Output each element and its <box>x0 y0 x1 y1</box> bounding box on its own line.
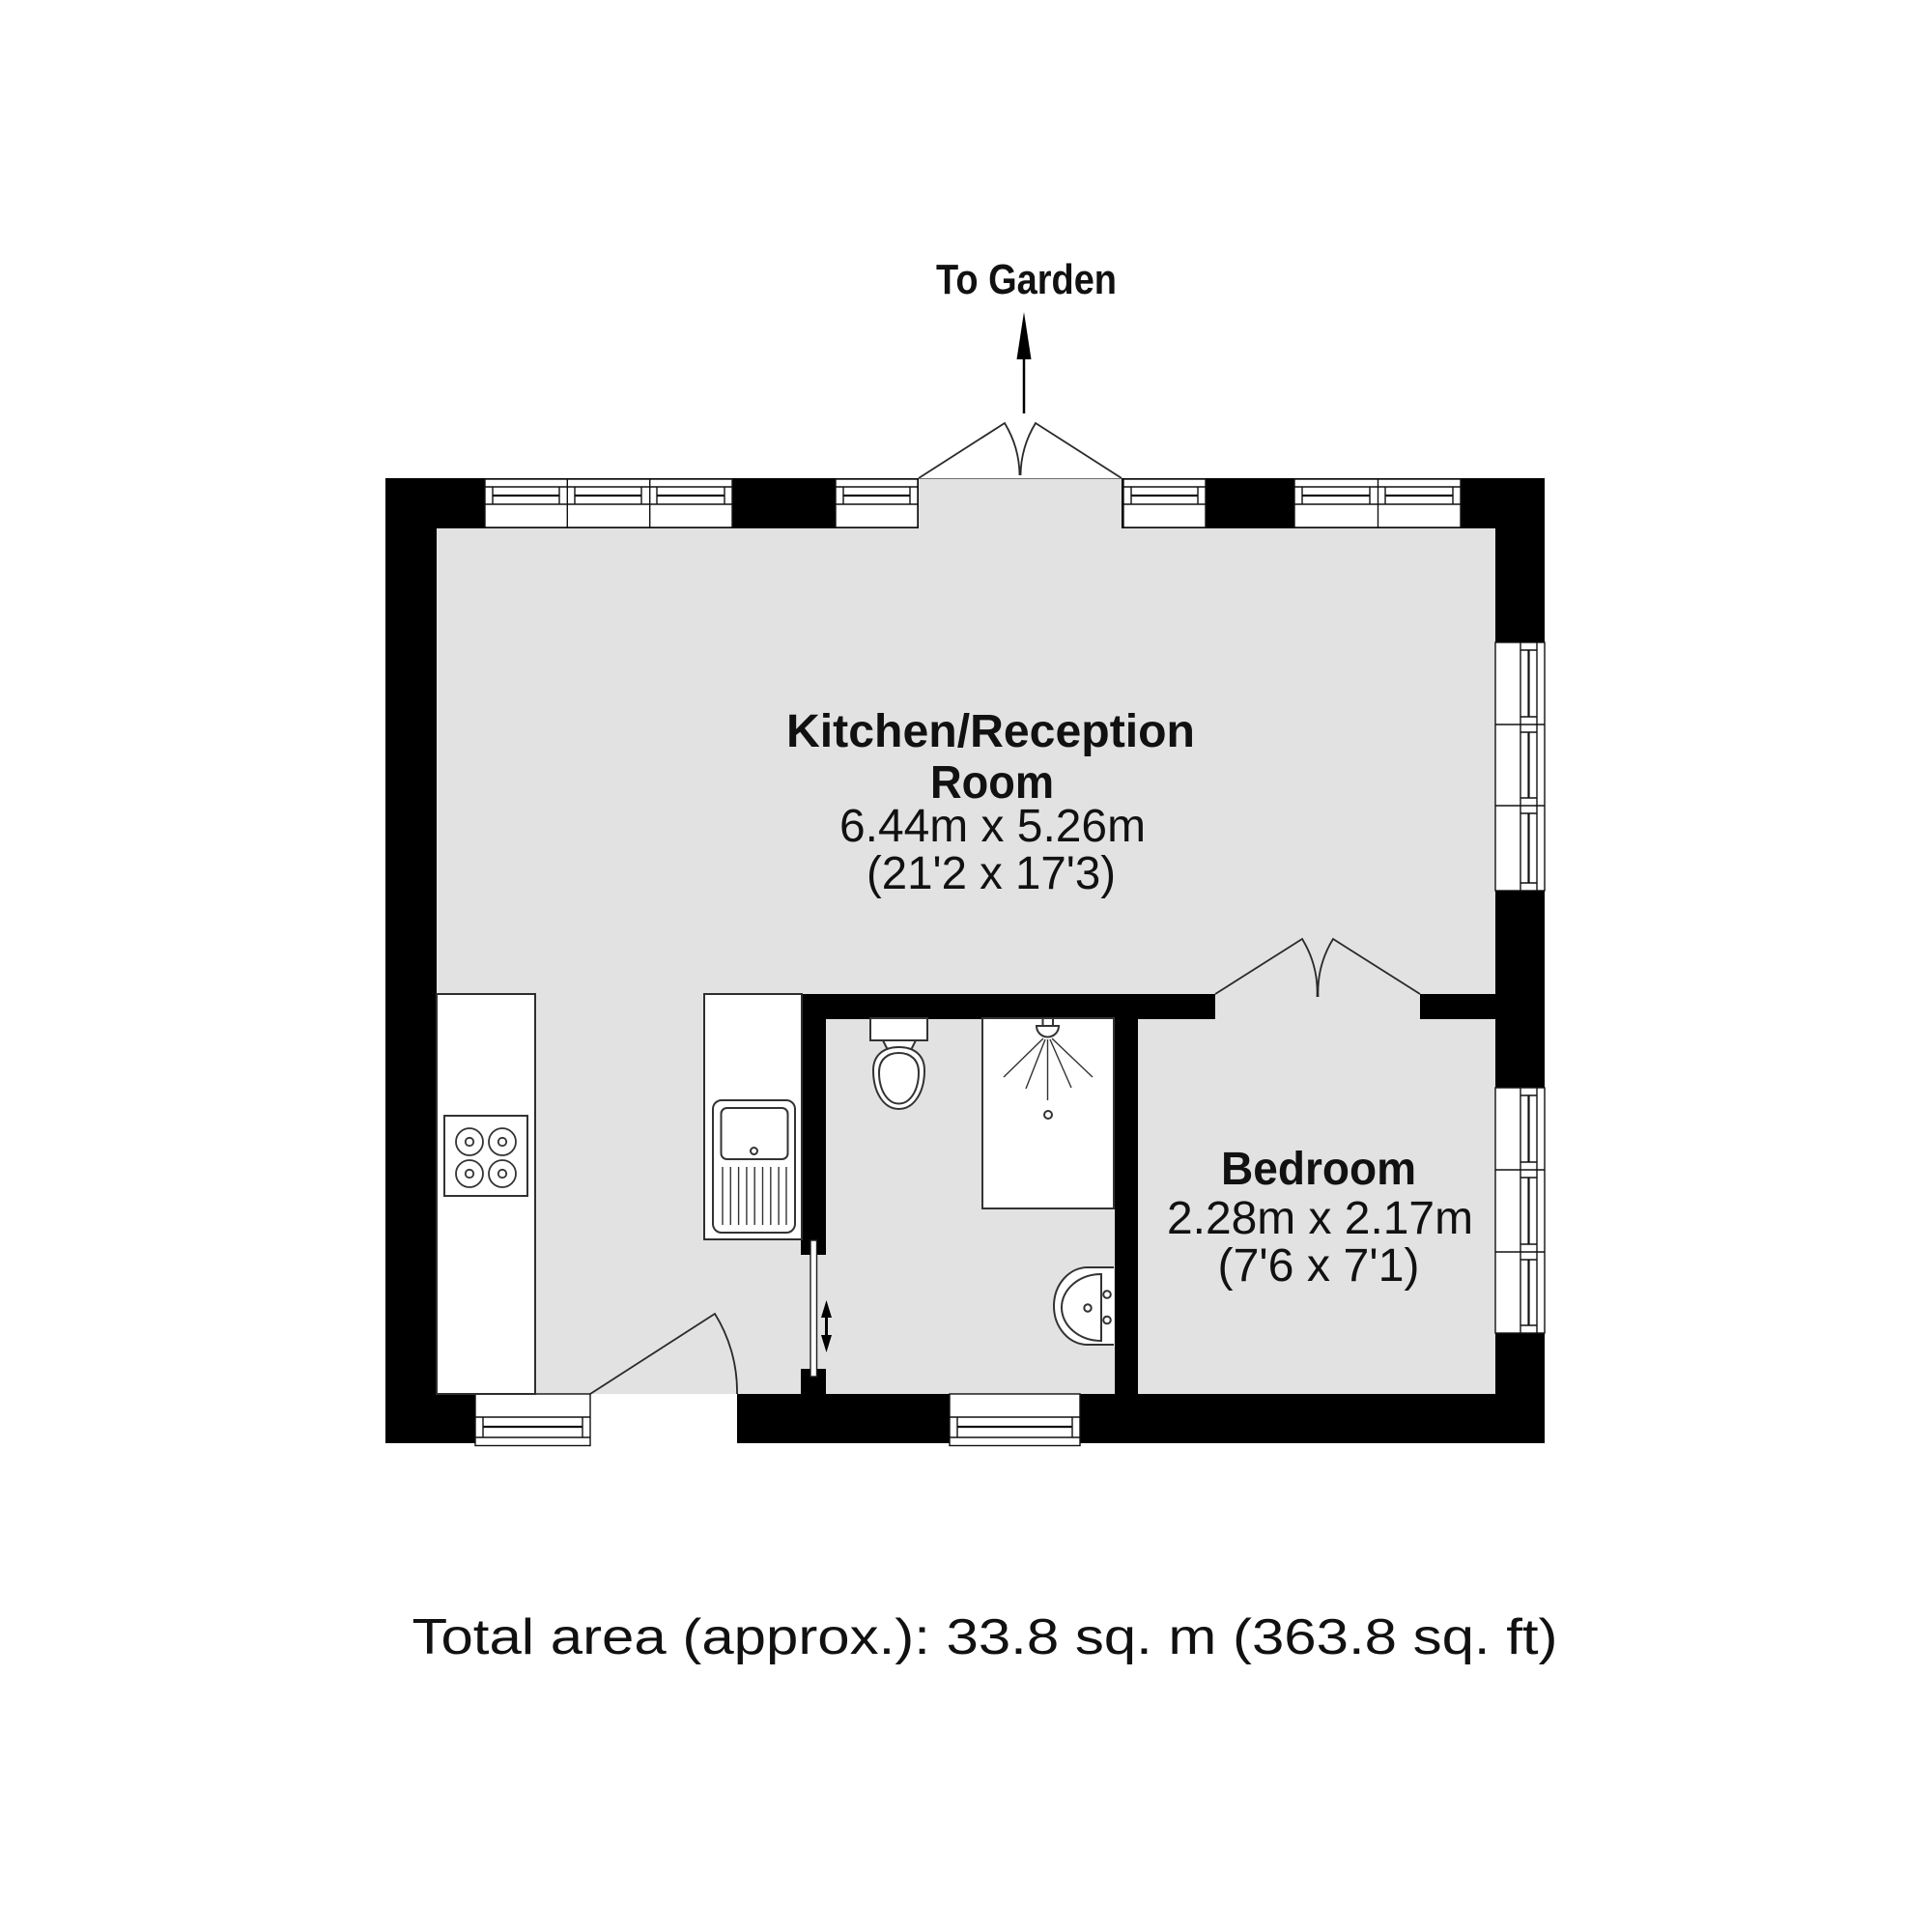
svg-text:6.44m x 5.26m: 6.44m x 5.26m <box>839 801 1146 852</box>
svg-text:(7'6 x 7'1): (7'6 x 7'1) <box>1218 1240 1420 1292</box>
svg-text:Kitchen/Reception: Kitchen/Reception <box>786 706 1195 757</box>
svg-text:2.28m x 2.17m: 2.28m x 2.17m <box>1167 1193 1473 1244</box>
svg-text:Total area (approx.): 33.8 sq.: Total area (approx.): 33.8 sq. m (363.8 … <box>412 1609 1558 1665</box>
svg-text:Bedroom: Bedroom <box>1221 1144 1416 1195</box>
svg-text:(21'2 x 17'3): (21'2 x 17'3) <box>867 848 1116 899</box>
svg-text:To Garden: To Garden <box>936 256 1117 303</box>
